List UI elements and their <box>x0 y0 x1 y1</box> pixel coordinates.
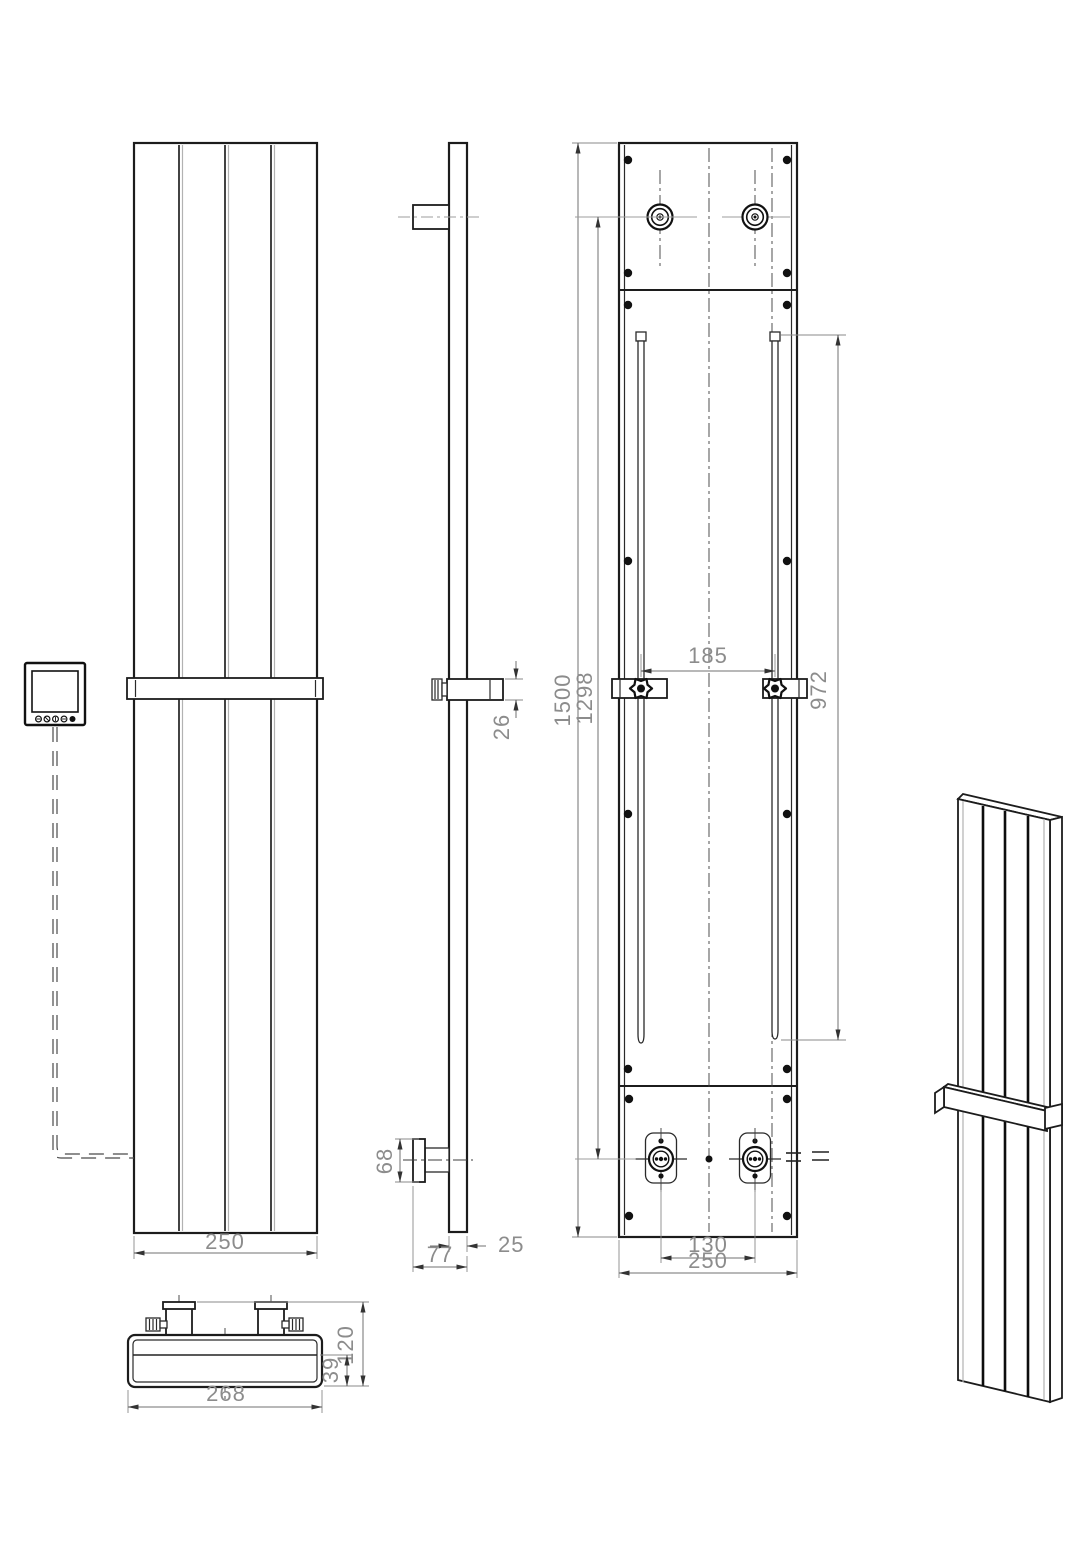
back-view: 1500 1298 185 972 130 <box>550 143 846 1278</box>
dim-slot-length: 972 <box>806 670 831 710</box>
dim-connection-span: 1298 <box>572 672 597 725</box>
dim-panel-thickness: 25 <box>498 1232 524 1257</box>
rail-knob-icon <box>432 679 447 700</box>
dim-front-width: 250 <box>205 1229 245 1254</box>
dim-bracket-height-group: 68 <box>372 1139 419 1182</box>
front-view: 250 <box>127 143 323 1259</box>
center-mark <box>706 1156 713 1163</box>
towel-rail-side <box>432 679 503 700</box>
dim-top-width: 268 <box>206 1381 246 1406</box>
dim-top-body-depth: 39 <box>318 1357 343 1383</box>
dim-bracket-spacing: 185 <box>688 643 728 668</box>
dim-top-body-depth-group: 39 <box>318 1355 352 1386</box>
isometric-view <box>935 794 1062 1402</box>
drawing-sheet: 250 26 <box>0 0 1080 1545</box>
top-view: 268 120 39 <box>128 1295 369 1413</box>
controller-cable <box>53 727 134 1158</box>
thermostat-controller <box>25 663 85 725</box>
dim-back-width: 250 <box>688 1248 728 1273</box>
controller-screen <box>32 671 78 712</box>
wall-bracket-left <box>612 679 667 698</box>
pipe-connection-right <box>255 1302 303 1335</box>
dim-total-depth: 77 <box>427 1242 453 1267</box>
side-view: 26 68 25 77 <box>372 143 524 1272</box>
pipe-connection-left <box>146 1302 195 1335</box>
wall-bracket-right <box>763 679 807 698</box>
dim-bracket-height: 68 <box>372 1148 397 1174</box>
top-body-outline <box>128 1335 322 1387</box>
dim-rail-height: 26 <box>489 714 514 740</box>
towel-rail-front <box>127 678 323 699</box>
